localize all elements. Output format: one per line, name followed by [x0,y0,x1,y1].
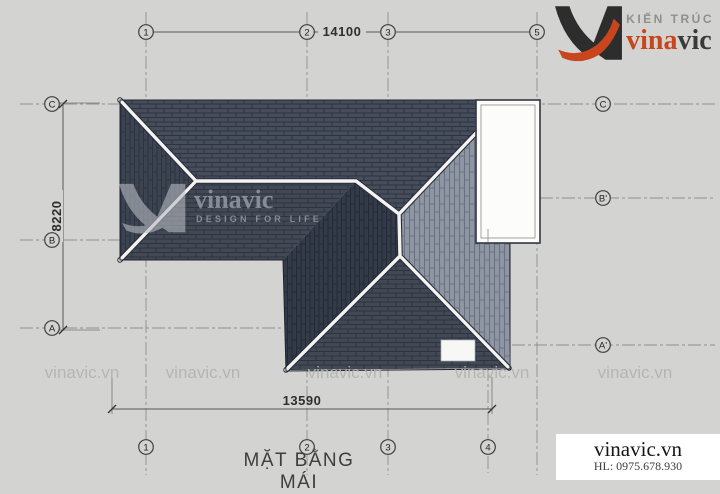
watermark-tile: vinavic.vn [598,363,673,382]
svg-text:1: 1 [143,442,148,453]
svg-text:2: 2 [304,27,309,38]
grid-marker-right-a-prime: A' [596,338,611,353]
svg-text:A: A [49,323,56,334]
grid-marker-bottom-4: 4 [481,440,496,455]
grid-marker-left-b: B [45,233,60,248]
watermark-tile: vinavic.vn [166,363,241,382]
grid-marker-left-a: A [45,321,60,336]
contact-box: vinavic.vn HL: 0975.678.930 [556,434,720,480]
watermark-row: vinavic.vn vinavic.vn vinavic.vn vinavic… [45,363,673,382]
roof-plan-sheet: vinavic DESIGN FOR LIFE vinavic.vn vinav… [0,0,720,480]
watermark-tile: vinavic.vn [45,363,120,382]
watermark-tile: vinavic.vn [455,363,530,382]
svg-text:5: 5 [534,27,539,38]
grid-marker-right-b-prime: B' [596,191,611,206]
drawing-title: MẶT BẰNG MÁI [224,450,374,494]
svg-text:B': B' [599,193,607,204]
contact-hotline: HL: 0975.678.930 [556,460,720,473]
roof-plan-drawing: vinavic DESIGN FOR LIFE vinavic.vn vinav… [0,0,720,480]
grid-marker-top-5: 5 [530,25,545,40]
logo-tagline: KIẾN TRÚC [626,12,714,26]
contact-website: vinavic.vn [556,438,720,460]
svg-text:4: 4 [485,442,490,453]
grid-marker-left-c: C [45,97,60,112]
roof-void-block [476,100,540,243]
watermark-tagline-text: DESIGN FOR LIFE [196,214,322,224]
grid-marker-right-c: C [596,97,611,112]
logo-brand-name: vinavic [626,27,714,55]
company-logo: KIẾN TRÚC vinavic [554,4,714,62]
roof [120,100,510,371]
svg-text:3: 3 [385,442,390,453]
svg-text:B: B [49,235,55,246]
svg-text:3: 3 [385,27,390,38]
grid-marker-bottom-3: 3 [381,440,396,455]
svg-text:C: C [600,99,607,110]
grid-marker-top-2: 2 [300,25,315,40]
svg-text:A': A' [599,340,607,351]
grid-marker-top-3: 3 [381,25,396,40]
svg-text:C: C [49,99,56,110]
dimension-top: 14100 [323,24,362,39]
grid-marker-bottom-1: 1 [139,440,154,455]
chimney [441,340,475,361]
watermark-brand-text: vinavic [194,185,273,214]
vinavic-logo-icon [554,4,624,62]
dimension-left: 8220 [49,201,64,232]
grid-marker-top-1: 1 [139,25,154,40]
watermark-tile: vinavic.vn [308,363,383,382]
svg-text:1: 1 [143,27,148,38]
dimension-bottom: 13590 [283,393,322,408]
